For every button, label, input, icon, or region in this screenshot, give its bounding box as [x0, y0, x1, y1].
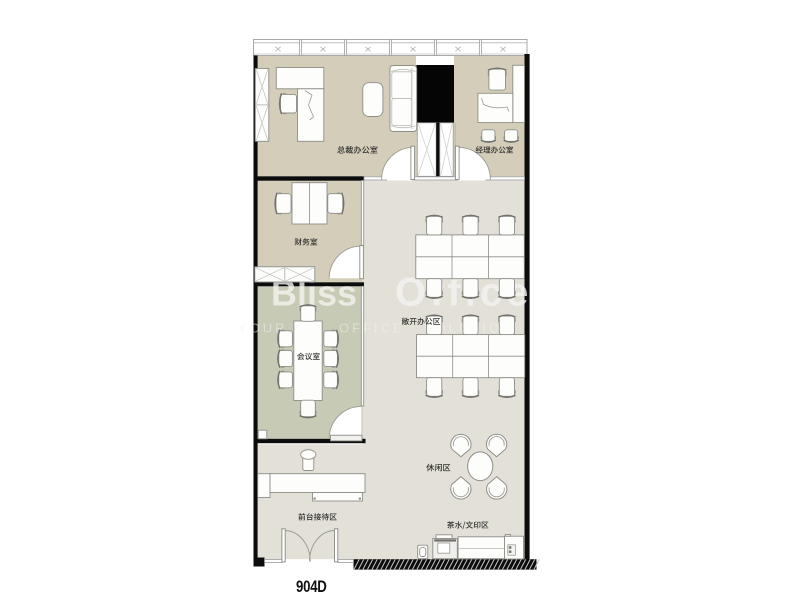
svg-text:904D: 904D: [296, 578, 327, 597]
